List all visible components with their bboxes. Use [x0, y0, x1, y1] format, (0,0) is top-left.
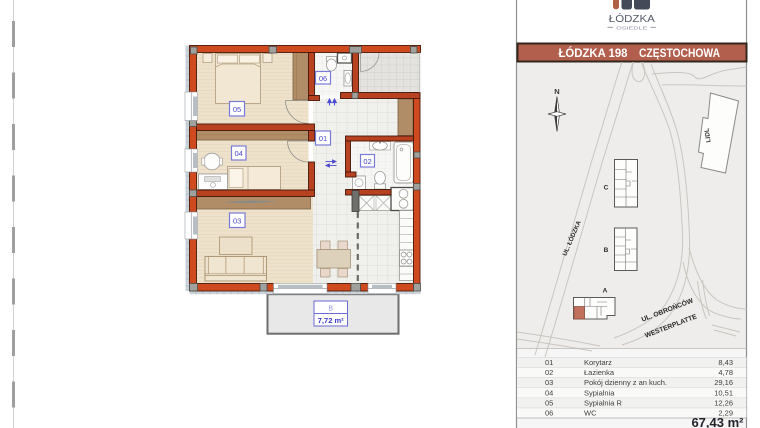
- svg-text:7,72 m²: 7,72 m²: [318, 316, 344, 325]
- svg-text:N: N: [554, 87, 559, 96]
- svg-text:Korytarz: Korytarz: [584, 358, 612, 367]
- svg-text:ŁÓDZKA 198: ŁÓDZKA 198: [559, 45, 628, 60]
- svg-text:03: 03: [545, 378, 553, 387]
- svg-text:05: 05: [233, 105, 241, 114]
- svg-text:06: 06: [545, 409, 553, 418]
- svg-text:01: 01: [319, 134, 327, 143]
- svg-text:06: 06: [319, 74, 327, 83]
- svg-text:ŁÓDZKA: ŁÓDZKA: [609, 12, 655, 25]
- svg-text:4,78: 4,78: [718, 368, 733, 377]
- svg-text:12,26: 12,26: [714, 398, 733, 407]
- svg-text:10,51: 10,51: [714, 388, 733, 397]
- svg-text:01: 01: [545, 358, 553, 367]
- svg-text:Sypialnia: Sypialnia: [584, 388, 615, 397]
- svg-text:04: 04: [545, 388, 553, 397]
- svg-text:8,43: 8,43: [718, 358, 733, 367]
- svg-text:CZĘSTOCHOWA: CZĘSTOCHOWA: [639, 46, 720, 60]
- svg-text:Pokój dzienny z an kuch.: Pokój dzienny z an kuch.: [584, 378, 667, 387]
- svg-text:04: 04: [235, 149, 243, 158]
- svg-text:B: B: [328, 306, 333, 313]
- svg-text:OSIEDLE: OSIEDLE: [616, 26, 647, 32]
- svg-text:67,43 m²: 67,43 m²: [691, 415, 744, 428]
- svg-text:C: C: [604, 185, 609, 192]
- svg-text:29,16: 29,16: [714, 378, 733, 387]
- svg-text:03: 03: [233, 216, 241, 225]
- svg-text:Łazienka: Łazienka: [584, 368, 615, 377]
- svg-text:05: 05: [545, 398, 553, 407]
- svg-text:02: 02: [545, 368, 553, 377]
- svg-text:B: B: [604, 247, 609, 254]
- svg-text:WC: WC: [584, 409, 597, 418]
- svg-text:02: 02: [363, 157, 371, 166]
- svg-text:Sypialnia R: Sypialnia R: [584, 398, 623, 407]
- svg-text:A: A: [603, 288, 608, 295]
